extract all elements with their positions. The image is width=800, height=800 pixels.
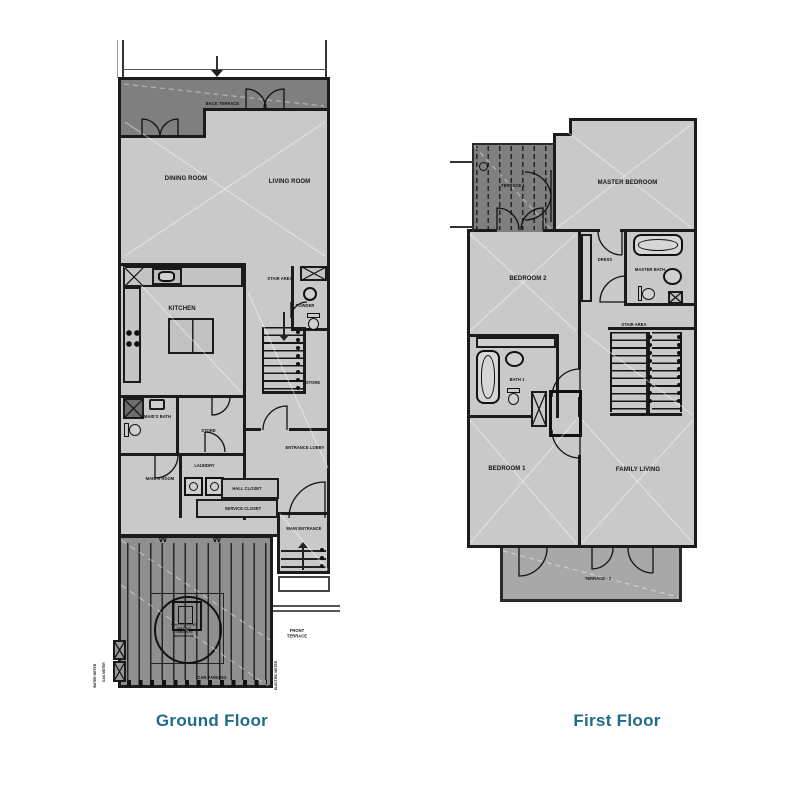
room-label-master-bath: MASTER BATH [634,268,667,273]
entry-arrow-line [216,56,218,70]
wall-segment [121,453,245,456]
bath-counter [476,337,556,348]
closet-box [531,391,547,427]
label-electric-meter: ELECTRIC METER [275,661,278,690]
kitchen-counter [123,266,243,287]
terrace-edge-line [273,605,340,607]
wall-segment [578,455,581,545]
room-label-store: STORE [193,429,224,434]
room-label-bath-1: BATH 1 [505,378,528,383]
property-line [122,40,124,78]
setback-line [122,69,327,70]
down-arrow-icon [211,70,223,77]
room-label-terrace-1: TERRACE 1 [495,184,530,189]
duct-shaft [549,390,582,437]
room-label-living-room: LIVING ROOM [252,179,327,187]
room-label-maids-bath: MAID'S BATH [139,415,176,420]
terrace-wall [500,548,503,602]
beam-line [450,226,474,228]
wall-segment [553,133,556,232]
room-label-kitchen: KITCHEN [152,306,212,314]
beam-line [450,161,474,163]
wall-segment [203,110,206,137]
room-label-bedroom-2: BEDROOM 2 [498,276,558,284]
wall-segment [291,266,294,330]
door-swing-mark: ∨∨ [158,535,166,544]
wall-segment [262,391,306,394]
stove-burners [124,327,141,353]
property-line [325,40,327,78]
toilet [129,424,141,436]
sink-basin [158,271,175,282]
back-terrace-area [121,110,205,137]
master-bedroom-area [555,120,697,232]
room-label-maids-room: MAID'S ROOM [140,477,179,482]
wall-segment [620,229,697,232]
wall-segment [578,307,581,369]
wall-segment [121,135,206,138]
down-arrow-icon [279,335,289,341]
terrace-wall [472,143,555,145]
closet-box [300,266,327,281]
terrace-2-area [500,548,682,602]
toilet [308,318,319,330]
tank-manhole-inner [178,606,193,624]
stair-arrow-line [283,312,285,336]
wall-segment [176,398,179,453]
terrace-wall [500,599,682,602]
door-swing-mark: ∨∨ [212,535,220,544]
wall-segment [543,229,600,232]
wall-segment [569,118,697,121]
room-label-dress: DRESS [593,258,617,263]
stair-stringer [646,332,650,416]
terrace-wall [472,143,474,232]
wall-segment [467,229,470,548]
up-arrow-icon [298,542,308,548]
room-label-main-entrance: MAIN ENTRANCE [286,527,323,532]
wall-segment [289,428,330,431]
staircase [610,332,646,412]
kitchen-island [168,318,214,354]
entrance-step-pad [278,576,330,592]
bathtub [476,350,500,404]
room-label-car-parking: CAR PARKING [194,676,229,681]
up-arrow-line [302,547,304,570]
bath-sink [505,351,524,367]
porch-markers [320,548,324,552]
wall-segment [243,263,246,435]
room-label-bedroom-1: BEDROOM 1 [477,466,537,474]
room-label-terrace-2: TERRACE - 2 [577,577,619,582]
terrace-wall [679,548,682,602]
wardrobe [581,234,592,302]
stair-balusters [648,335,652,339]
wall-segment [203,108,327,111]
stair-balusters [296,330,300,334]
column-marker [479,162,488,171]
wall-segment [610,413,682,416]
room-label-stair-area: STAIR AREA [616,323,651,328]
bath-sink [149,399,165,410]
wall-segment [694,118,697,548]
room-label-entrance-lobby: ENTRANCE LOBBY [285,446,324,451]
room-label-store: STORE [299,381,328,386]
toilet [642,288,655,300]
room-label-dining-room: DINING ROOM [150,176,222,184]
room-label-family-living: FAMILY LIVING [604,467,672,475]
washing-machine [184,477,203,496]
floor-plan-sheet: ∨∨ ∨∨ [0,0,800,800]
room-label-stair-area: STAIR AREA [260,277,301,282]
bathtub [633,234,683,256]
meter-box [113,640,126,660]
meter-box [113,661,126,682]
closet-box [668,291,683,304]
room-label-back-terrace: BACK TERRACE [197,102,248,107]
room-label-master-bedroom: MASTER BEDROOM [590,180,665,188]
ground-floor-title: Ground Floor [122,711,302,731]
wall-segment [245,428,261,431]
wall-segment [467,415,533,418]
room-label-hall-closet: HALL CLOSET [227,487,266,492]
first-floor-title: First Floor [527,711,707,731]
property-line [117,40,118,78]
wall-segment [624,303,697,306]
outline-notch [553,118,570,134]
room-label-powder: POWDER [288,304,322,309]
label-water-meter: WATER METER [94,664,97,688]
powder-sink [303,287,317,301]
toilet [508,393,519,405]
room-label-laundry: LAUNDRY [189,464,220,469]
terrace-edge-line [273,610,340,612]
room-label-front-terrace: FRONT TERRACE [281,629,312,639]
wall-segment [179,456,182,518]
staircase [652,332,682,412]
label-water-tank: UNDER GROUND PRECAST CONCRETE WATER TANK [171,624,198,639]
wall-segment [624,232,627,305]
stair-balusters [677,335,681,339]
room-label-service-closet: SERVICE CLOSET [222,507,264,512]
label-gas-meter: GAS METER [103,662,106,682]
